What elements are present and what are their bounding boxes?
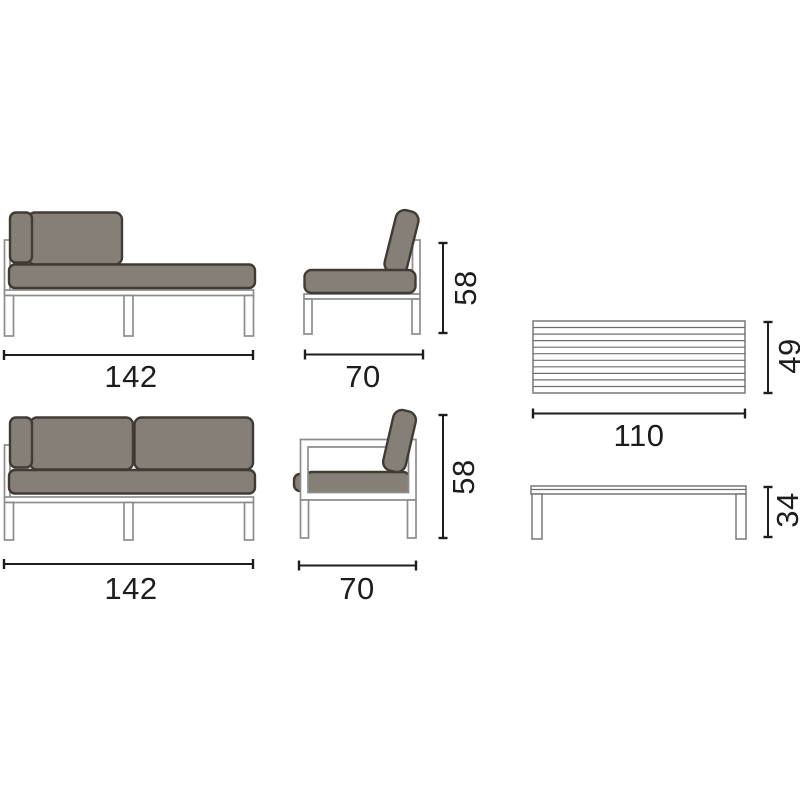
furniture-drawings <box>0 0 800 800</box>
armchair-side-view <box>294 408 418 538</box>
armchair-width-label: 70 <box>339 571 374 607</box>
seat-height-label: 58 <box>448 270 484 305</box>
seat-width-label: 70 <box>345 359 380 395</box>
sofa-width-label: 142 <box>104 571 157 607</box>
seat-side-view <box>304 208 420 334</box>
chaise-width-label: 142 <box>104 359 157 395</box>
table-top-view <box>533 321 745 393</box>
armchair-height-label: 58 <box>446 459 482 494</box>
table-depth-label: 49 <box>772 338 800 373</box>
furniture-dimension-diagram: 142 70 58 110 49 142 70 58 34 <box>0 0 800 800</box>
table-side-view <box>531 486 746 539</box>
table-width-label: 110 <box>614 418 665 454</box>
chaise-front-view <box>5 213 256 337</box>
table-height-label: 34 <box>770 492 800 527</box>
sofa-front-view <box>5 418 256 541</box>
